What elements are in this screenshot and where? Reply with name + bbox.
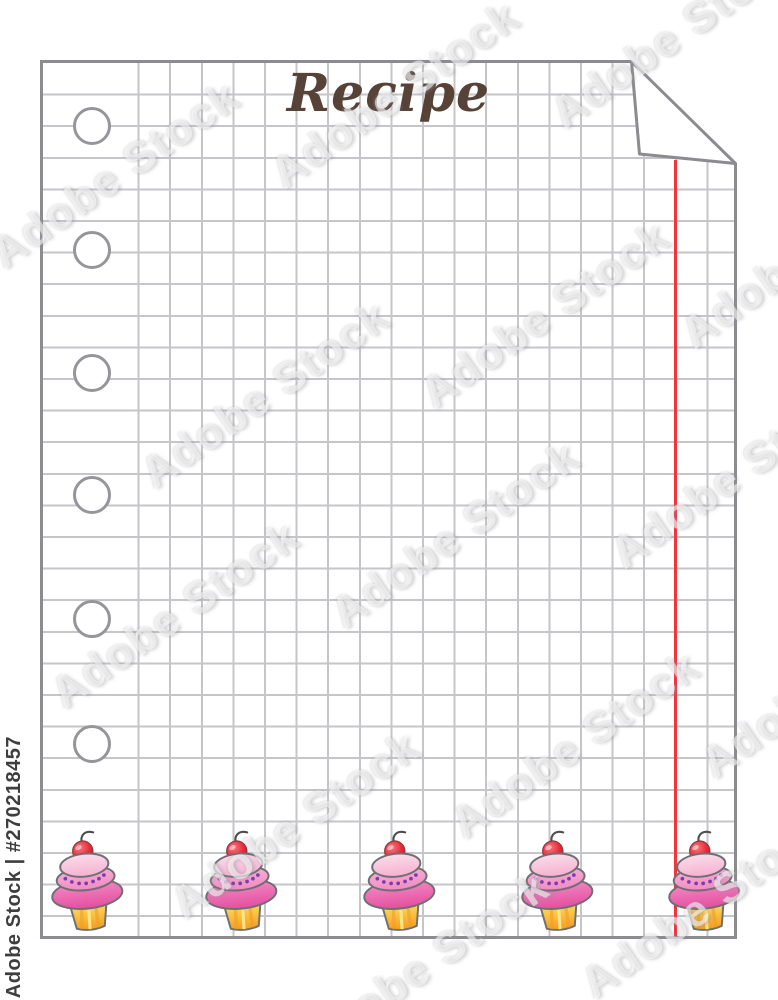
punch-hole: [73, 600, 111, 638]
cupcake-icon: [654, 825, 753, 939]
cupcake-icon: [507, 825, 606, 939]
punch-hole: [73, 231, 111, 269]
page-title: Recipe: [40, 64, 737, 124]
punch-hole: [73, 354, 111, 392]
graph-paper-sheet: Recipe: [40, 60, 737, 939]
punch-hole: [73, 476, 111, 514]
cupcake-icon: [37, 825, 136, 939]
folded-corner: [40, 60, 737, 939]
cupcake-icon: [191, 825, 290, 939]
cupcake-icon: [349, 825, 448, 939]
stock-credit-watermark: Adobe Stock | #270218457: [3, 736, 26, 998]
punch-hole: [73, 725, 111, 763]
recipe-card-page: Recipe Adobe Stock Adobe Stock Adobe Sto…: [0, 0, 778, 1000]
red-margin-line: [674, 160, 677, 939]
